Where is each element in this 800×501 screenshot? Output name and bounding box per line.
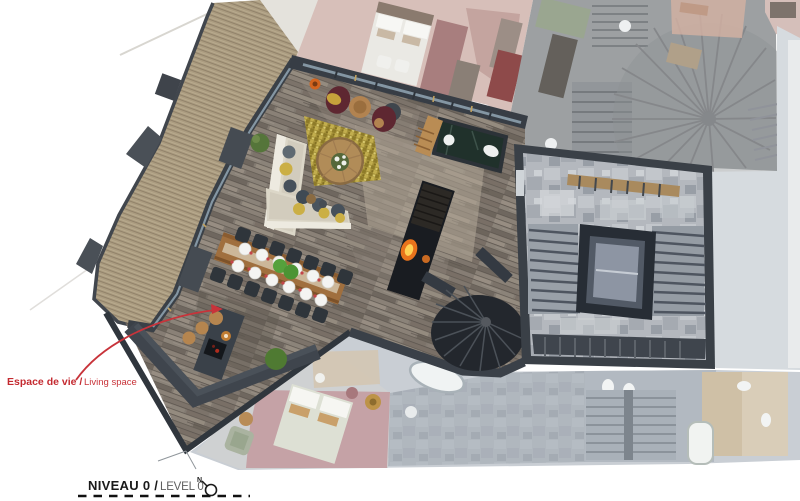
- svg-text:NIVEAU 0 /: NIVEAU 0 /: [88, 478, 158, 493]
- svg-text:N: N: [197, 477, 202, 484]
- svg-text:Espace de vie /: Espace de vie /: [7, 376, 82, 388]
- svg-text:Living space: Living space: [84, 377, 137, 388]
